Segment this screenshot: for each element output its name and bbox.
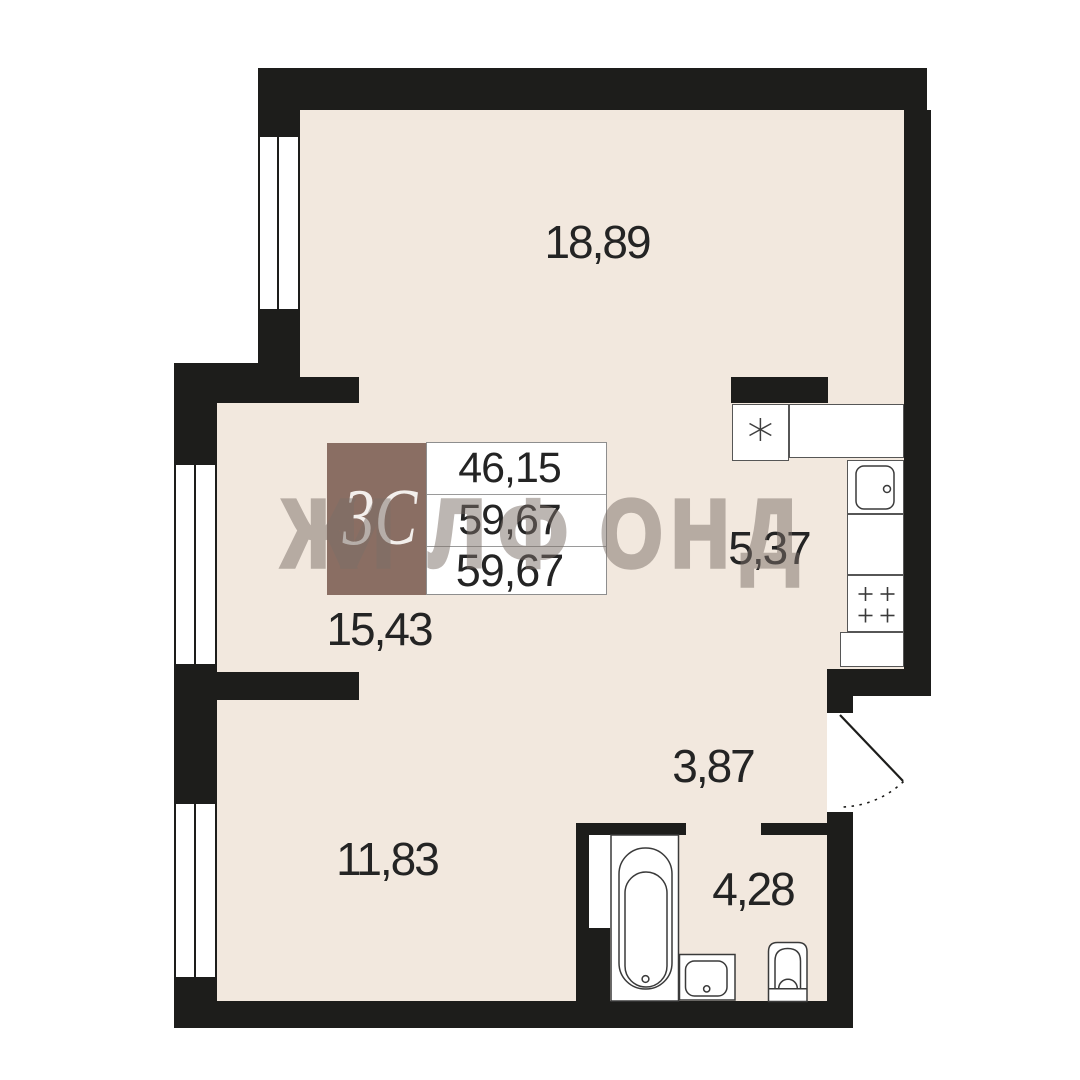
svg-text:ЖИЛФОНД: ЖИЛФОНД xyxy=(281,480,799,588)
